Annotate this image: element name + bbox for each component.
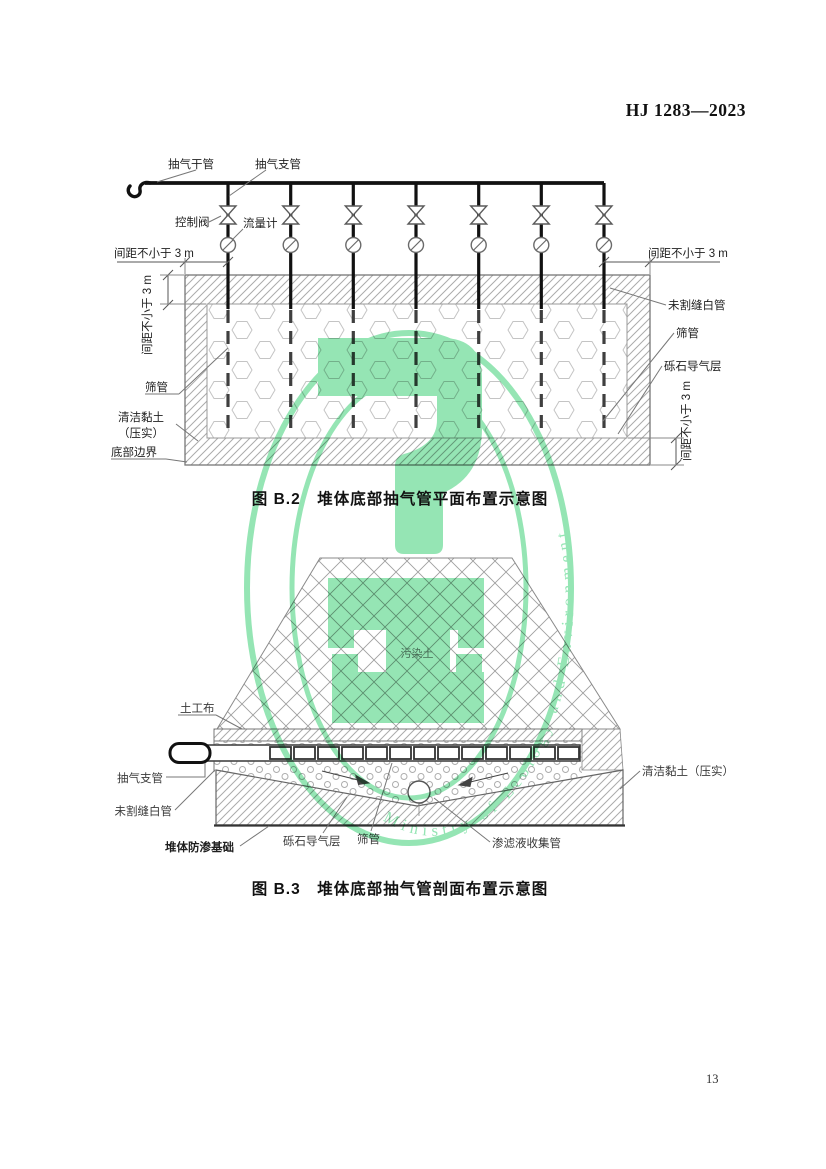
contaminated-soil-pile xyxy=(217,558,620,729)
label-spacing-top-right: 间距不小于 3 m xyxy=(648,247,728,260)
label-foundation: 堆体防渗基础 xyxy=(165,840,234,854)
label-clean-clay-line2: （压实） xyxy=(118,426,164,440)
diagram-canvas: 抽气干管 抽气支管 控制阀 流量计 间距不小于 3 m 间距不小于 3 m 间距… xyxy=(0,0,826,1169)
label-screen-pipe-left: 筛管 xyxy=(145,380,168,394)
geotextile-band xyxy=(214,729,582,741)
label-branch-pipe-b3: 抽气支管 xyxy=(117,771,163,785)
clay-wedge xyxy=(582,729,623,770)
label-contaminated-soil: 污染土 xyxy=(401,646,434,660)
label-flow-meter: 流量计 xyxy=(243,216,278,230)
label-gravel-layer-b3: 砾石导气层 xyxy=(283,834,341,848)
label-leachate-pipe: 渗滤液收集管 xyxy=(492,836,561,850)
label-spacing-top-left: 间距不小于 3 m xyxy=(114,247,194,260)
figure-b2-caption: 图 B.2 堆体底部抽气管平面布置示意图 xyxy=(0,487,800,509)
figure-b3-drawing: 土工布 污染土 抽气支管 未割缝白管 堆体防渗基础 砾石导气层 筛管 渗滤液收集… xyxy=(115,558,735,854)
label-unslotted-pipe-b2: 未割缝白管 xyxy=(668,298,726,312)
figure-b3-caption: 图 B.3 堆体底部抽气管剖面布置示意图 xyxy=(0,877,800,899)
label-spacing-side-left: 间距不小于 3 m xyxy=(141,275,154,355)
label-gravel-layer-b2: 砾石导气层 xyxy=(664,359,722,373)
label-control-valve: 控制阀 xyxy=(175,215,210,229)
figure-b2-drawing: 抽气干管 抽气支管 控制阀 流量计 间距不小于 3 m 间距不小于 3 m 间距… xyxy=(111,157,728,470)
label-unslotted-pipe-b3: 未割缝白管 xyxy=(115,804,173,818)
label-clean-clay-line1: 清洁黏土 xyxy=(118,410,164,424)
label-branch-pipe: 抽气支管 xyxy=(255,157,301,171)
label-main-pipe: 抽气干管 xyxy=(168,157,214,171)
pipe-end-cap xyxy=(170,744,210,763)
label-spacing-side-right: 间距不小于 3 m xyxy=(680,381,693,461)
label-geotextile: 土工布 xyxy=(180,702,215,715)
label-clean-clay-b3: 清洁黏土（压实） xyxy=(642,764,734,778)
document-page: HJ 1283—2023 xyxy=(0,0,826,1169)
label-screen-pipe-b3: 筛管 xyxy=(357,832,380,846)
label-bottom-boundary: 底部边界 xyxy=(111,445,157,459)
label-screen-pipe-right: 筛管 xyxy=(676,326,699,340)
leachate-collection-pipe xyxy=(408,781,430,803)
page-number: 13 xyxy=(706,1072,719,1087)
